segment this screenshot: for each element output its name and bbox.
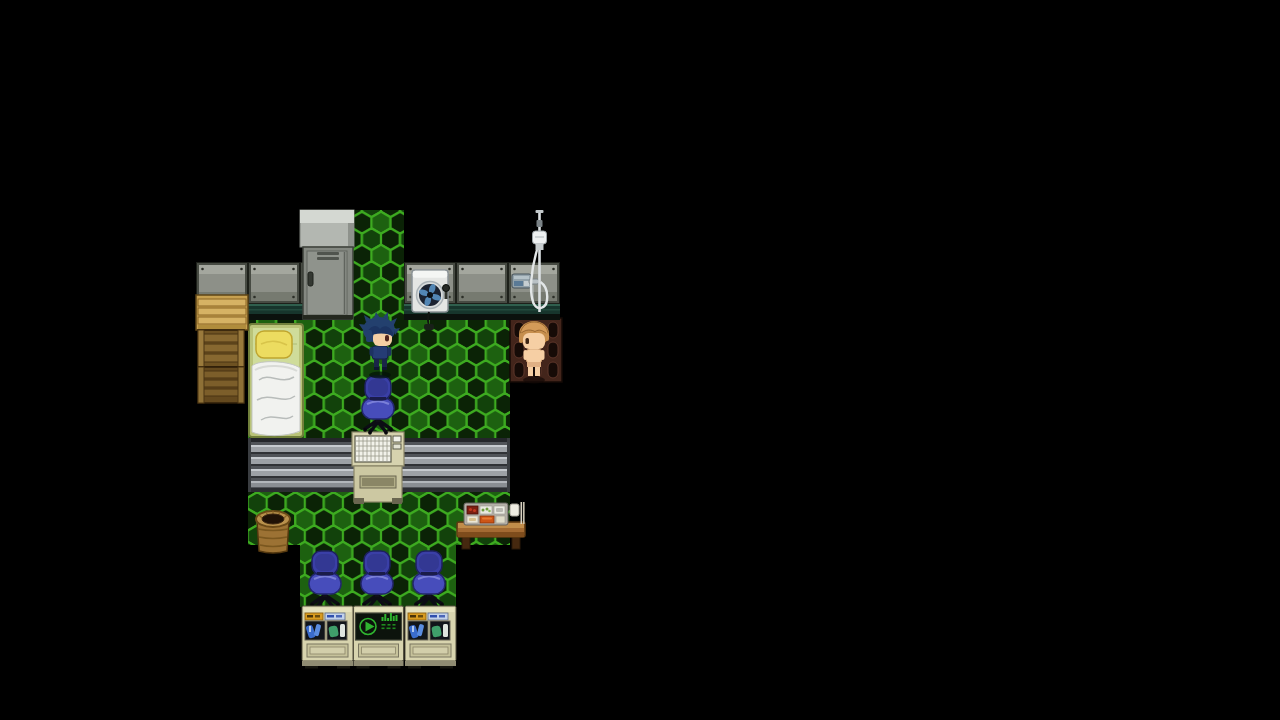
bed[interactable] [249, 324, 303, 437]
basket[interactable] [256, 511, 290, 553]
chopsticks [521, 502, 523, 524]
monitor-console[interactable] [354, 606, 404, 669]
wooden-crates [196, 295, 248, 403]
keyboard [355, 436, 391, 462]
metal-locker[interactable] [300, 210, 354, 319]
screen-background [0, 0, 1280, 720]
vending-machine-left[interactable] [302, 606, 353, 669]
power-cord [428, 312, 429, 326]
cup [510, 504, 519, 516]
game-viewport[interactable] [0, 0, 1280, 720]
meal-tray [464, 503, 508, 525]
vending-machine-right[interactable] [405, 606, 456, 669]
game-screen [0, 0, 1280, 720]
control-console[interactable] [352, 432, 404, 504]
